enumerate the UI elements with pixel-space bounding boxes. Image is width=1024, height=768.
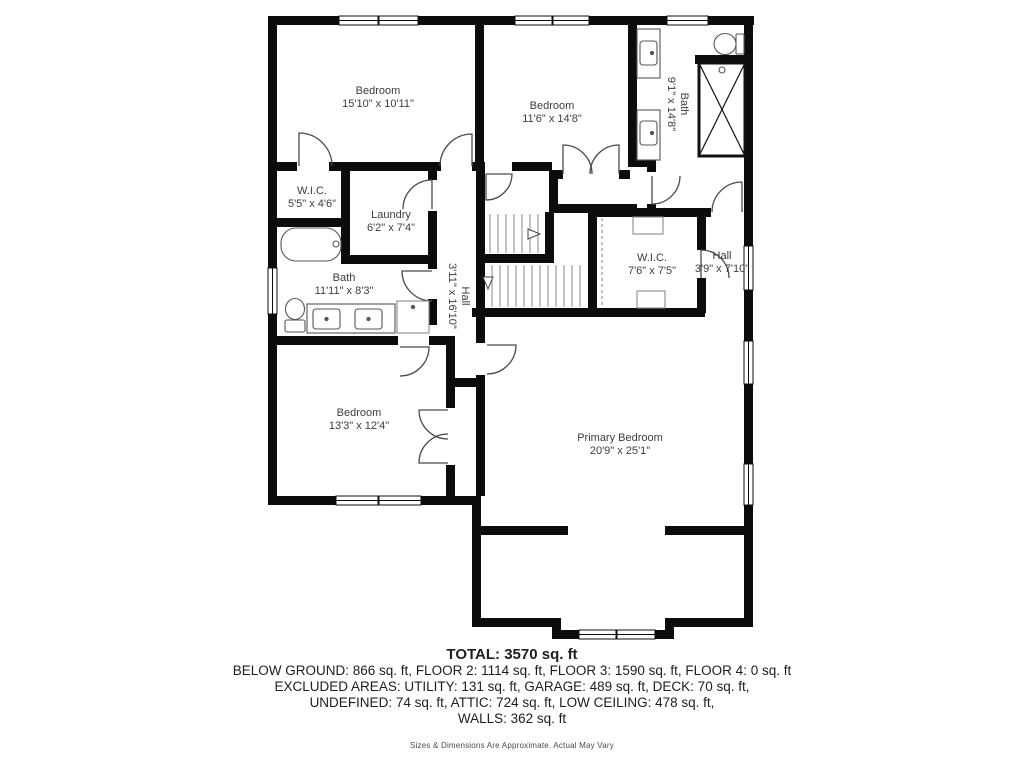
room-name: Bath (315, 272, 374, 285)
room-dims: 11'11" x 8'3" (315, 285, 374, 298)
window-icon (553, 16, 589, 25)
excluded-areas-text: EXCLUDED AREAS: UTILITY: 131 sq. ft, GAR… (0, 679, 1024, 695)
room-name: W.I.C. (288, 185, 336, 198)
bathtub-icon (281, 228, 341, 261)
room-dims: 20'9" x 25'1" (577, 445, 663, 458)
toilet-icon (285, 299, 305, 333)
window-icon (268, 268, 277, 314)
floors-area-text: BELOW GROUND: 866 sq. ft, FLOOR 2: 1114 … (0, 663, 1024, 679)
double-sink-icon (307, 304, 395, 333)
total-area-text: TOTAL: 3570 sq. ft (0, 646, 1024, 663)
sink-icon (637, 110, 660, 160)
room-label-hall-small: Hall 3'9" x 7'10" (695, 250, 749, 276)
door-arc (486, 174, 512, 200)
room-dims: 7'6" x 7'5" (628, 265, 676, 278)
room-label-hall-main: Hall 3'11" x 16'10" (445, 263, 471, 329)
room-label-primary-bedroom: Primary Bedroom 20'9" x 25'1" (577, 432, 663, 458)
door-arc (402, 271, 432, 301)
room-label-bath-upper: Bath 9'1" x 14'8" (664, 77, 690, 131)
door-arc (652, 176, 680, 204)
window-icon (379, 16, 418, 25)
door-arc (487, 345, 516, 374)
room-name: Primary Bedroom (577, 432, 663, 445)
shower-stall-icon (699, 63, 745, 156)
door-arc (403, 180, 432, 209)
room-label-laundry: Laundry 6'2" x 7'4" (367, 209, 415, 235)
stair-treads-lower (492, 265, 580, 307)
room-name: Bedroom (522, 100, 582, 113)
room-dims: 13'3" x 12'4" (329, 420, 389, 433)
room-name: Laundry (367, 209, 415, 222)
room-dims: 9'1" x 14'8" (664, 77, 677, 131)
disclaimer-text: Sizes & Dimensions Are Approximate. Actu… (0, 741, 1024, 750)
area-summary: TOTAL: 3570 sq. ft BELOW GROUND: 866 sq.… (0, 646, 1024, 750)
room-label-bedroom-3: Bedroom 13'3" x 12'4" (329, 407, 389, 433)
window-icon (379, 496, 421, 505)
door-arc (440, 134, 472, 166)
window-icon (744, 341, 753, 384)
room-name: Bedroom (329, 407, 389, 420)
room-name: Bedroom (342, 85, 414, 98)
door-arc (563, 145, 592, 174)
room-name: Bath (677, 77, 690, 131)
room-name: Hall (695, 250, 749, 263)
room-label-wic-small: W.I.C. 5'5" x 4'6" (288, 185, 336, 211)
shower-icon (397, 301, 429, 333)
room-label-bedroom-2: Bedroom 11'6" x 14'8" (522, 100, 582, 126)
room-dims: 3'9" x 7'10" (695, 263, 749, 276)
undefined-areas-text: UNDEFINED: 74 sq. ft, ATTIC: 724 sq. ft,… (0, 695, 1024, 711)
room-dims: 5'5" x 4'6" (288, 198, 336, 211)
floor-plan-page: Bedroom 15'10" x 10'11" Bedroom 11'6" x … (0, 0, 1024, 768)
window-icon (617, 630, 655, 639)
room-name: Hall (458, 263, 471, 329)
room-name: W.I.C. (628, 252, 676, 265)
window-icon (515, 16, 552, 25)
door-arc (590, 145, 619, 174)
window-icon (339, 16, 378, 25)
door-arc (299, 133, 332, 166)
room-dims: 11'6" x 14'8" (522, 113, 582, 126)
toilet-icon (714, 34, 744, 55)
window-icon (579, 630, 616, 639)
room-label-bedroom-1: Bedroom 15'10" x 10'11" (342, 85, 414, 111)
room-label-wic-primary: W.I.C. 7'6" x 7'5" (628, 252, 676, 278)
door-arc (712, 182, 742, 212)
walls-area-text: WALLS: 362 sq. ft (0, 711, 1024, 727)
room-dims: 15'10" x 10'11" (342, 98, 414, 111)
room-dims: 6'2" x 7'4" (367, 222, 415, 235)
room-dims: 3'11" x 16'10" (445, 263, 458, 329)
window-icon (667, 16, 708, 25)
room-label-bath-lower: Bath 11'11" x 8'3" (315, 272, 374, 298)
sink-icon (637, 29, 660, 78)
window-icon (744, 464, 753, 505)
window-icon (336, 496, 378, 505)
door-arc (400, 347, 429, 376)
